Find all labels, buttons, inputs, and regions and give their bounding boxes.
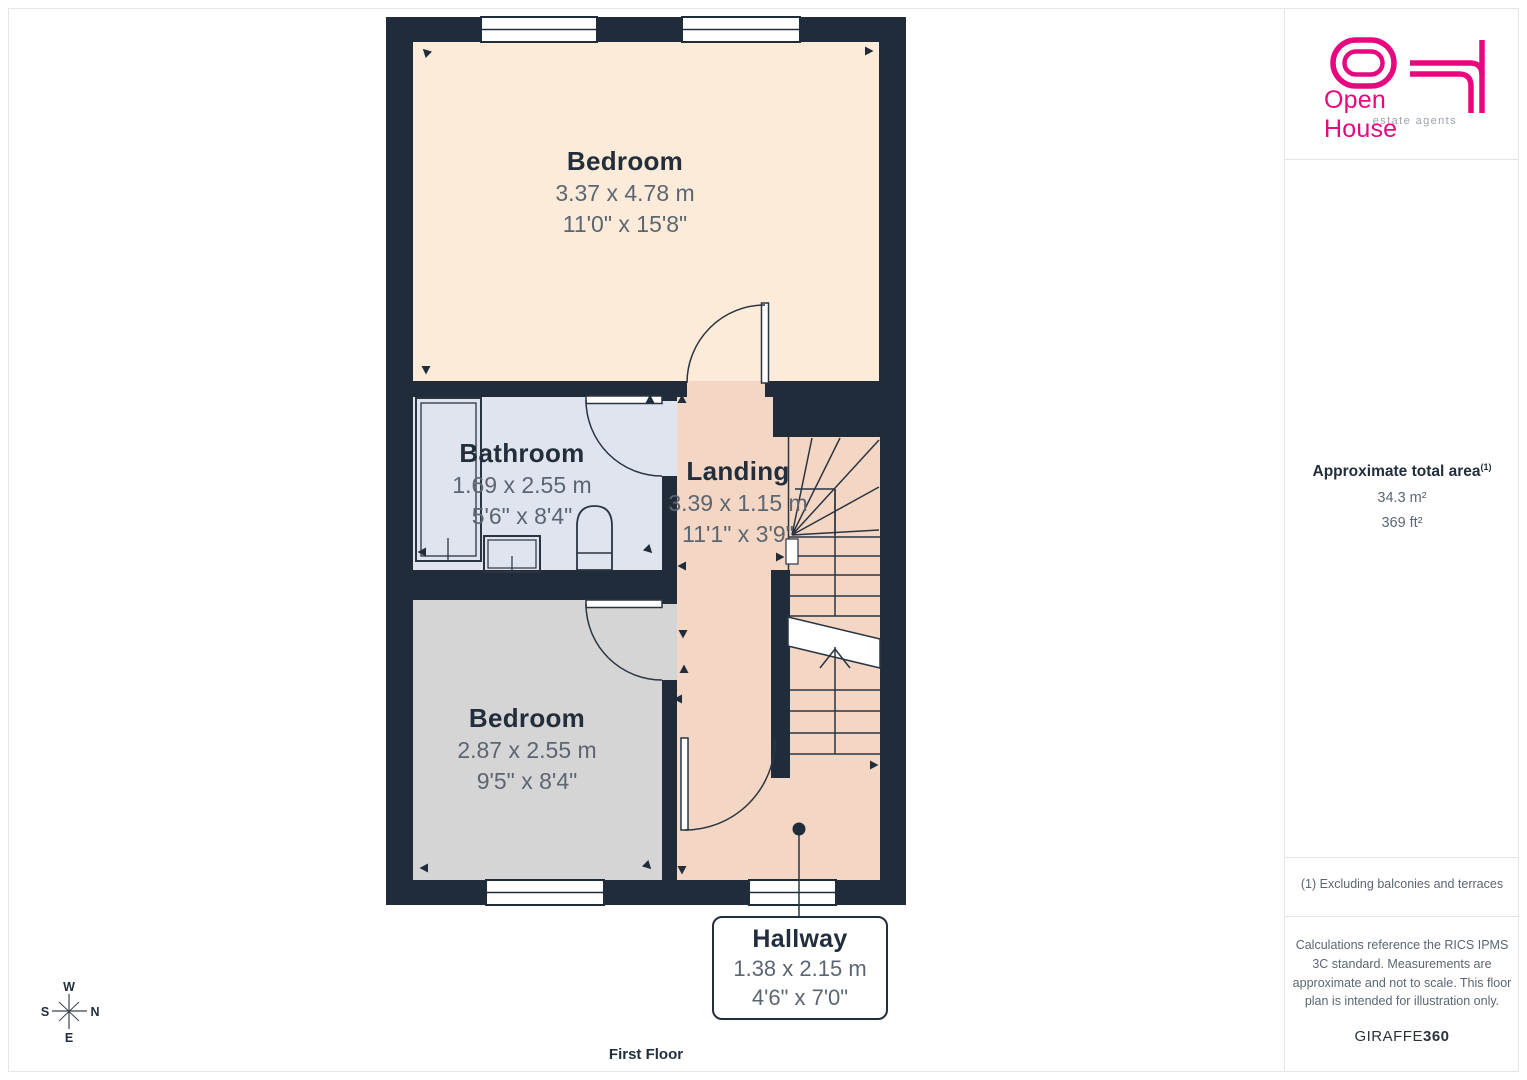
room-dims-metric: 1.38 x 2.15 m [733, 956, 866, 982]
room-name: Bedroom [555, 146, 694, 177]
total-area-footnote-ref: (1) [1480, 462, 1491, 472]
total-area-title-text: Approximate total area [1313, 463, 1481, 480]
room-dims-imperial: 5'6" x 8'4" [452, 503, 591, 531]
giraffe360-suffix: 360 [1423, 1028, 1450, 1045]
room-name: Landing [668, 456, 807, 487]
total-area-title: Approximate total area(1) [1285, 462, 1519, 481]
compass-s: S [41, 1005, 49, 1019]
hallway-callout: Hallway 1.38 x 2.15 m 4'6" x 7'0" [712, 916, 888, 1020]
room-name: Bedroom [457, 703, 596, 734]
bedroom-2-door-opening [662, 604, 677, 680]
compass-icon [52, 994, 87, 1029]
bedroom-1-door-threshold [687, 381, 765, 397]
total-area-block: Approximate total area(1) 34.3 m² 369 ft… [1285, 462, 1519, 531]
room-dims-imperial: 11'0" x 15'8" [555, 211, 694, 239]
room-dims-imperial: 11'1" x 3'9" [668, 521, 807, 549]
compass-w: W [63, 980, 75, 994]
area-footnote: (1) Excluding balconies and terraces [1285, 877, 1519, 891]
hallway-door [681, 738, 688, 830]
room-dims-metric: 2.87 x 2.55 m [457, 737, 596, 765]
room-label-bedroom-2: Bedroom 2.87 x 2.55 m 9'5" x 8'4" [457, 703, 596, 795]
stairwell-wall [771, 570, 790, 778]
giraffe360-brand: GIRAFFE360 [1285, 1028, 1519, 1045]
floor-label: First Floor [609, 1046, 683, 1063]
bedroom-1-door [762, 303, 769, 383]
compass-n: N [90, 1005, 99, 1019]
bedroom-2-door [586, 600, 662, 608]
room-dims-metric: 3.37 x 4.78 m [555, 180, 694, 208]
hallway-floor-strip [773, 778, 788, 880]
floorplan-page: { "floor_plan": { "floor_label": "First … [0, 0, 1527, 1080]
room-label-bedroom-1: Bedroom 3.37 x 4.78 m 11'0" x 15'8" [555, 146, 694, 238]
room-name: Bathroom [452, 438, 591, 469]
compass-e: E [65, 1031, 73, 1045]
hallway-leader-dot [793, 823, 806, 836]
disclaimer-text: Calculations reference the RICS IPMS 3C … [1292, 936, 1512, 1011]
brand-tagline: estate agents [1324, 115, 1457, 127]
room-name: Hallway [752, 925, 847, 954]
total-area-metric: 34.3 m² [1285, 490, 1519, 506]
room-dims-metric: 3.39 x 1.15 m [668, 490, 807, 518]
room-label-bathroom: Bathroom 1.69 x 2.55 m 5'6" x 8'4" [452, 438, 591, 530]
room-dims-imperial: 4'6" x 7'0" [752, 985, 848, 1011]
room-label-landing: Landing 3.39 x 1.15 m 11'1" x 3'9" [668, 456, 807, 548]
giraffe360-name: GIRAFFE [1354, 1028, 1423, 1045]
room-dims-metric: 1.69 x 2.55 m [452, 472, 591, 500]
room-dims-imperial: 9'5" x 8'4" [457, 768, 596, 796]
total-area-imperial: 369 ft² [1285, 515, 1519, 531]
